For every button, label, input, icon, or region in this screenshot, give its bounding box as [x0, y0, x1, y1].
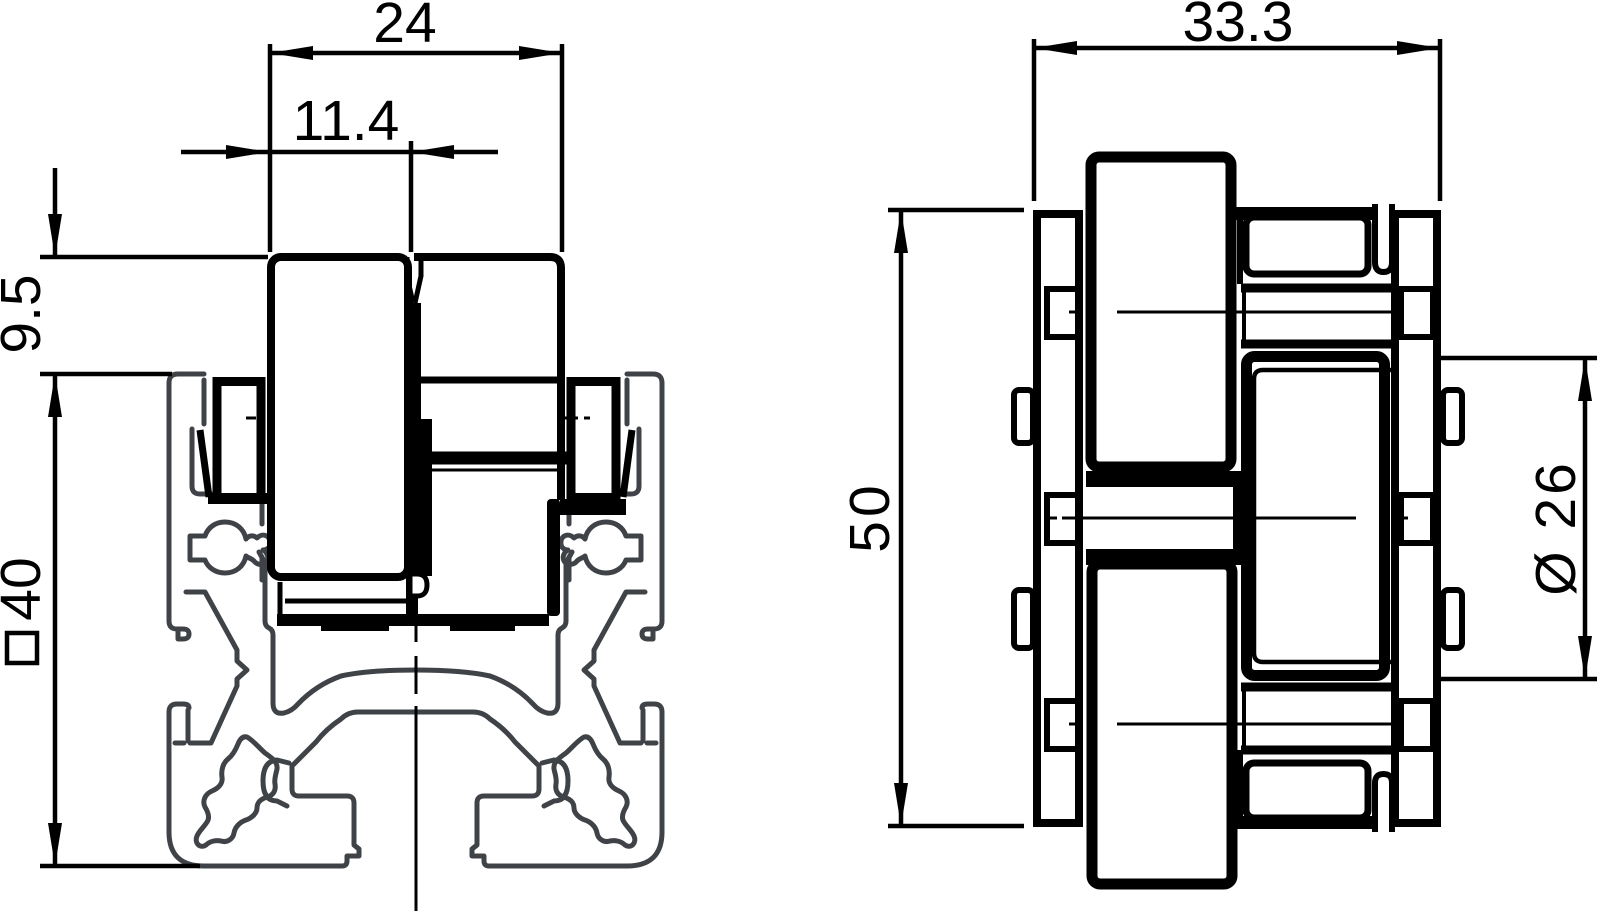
- svg-text:50: 50: [838, 481, 902, 552]
- svg-text:9.5: 9.5: [0, 274, 53, 353]
- svg-text:11.4: 11.4: [293, 89, 400, 153]
- svg-text:Ø 26: Ø 26: [1524, 460, 1588, 596]
- svg-text:24: 24: [373, 0, 436, 55]
- svg-text:40: 40: [0, 557, 53, 620]
